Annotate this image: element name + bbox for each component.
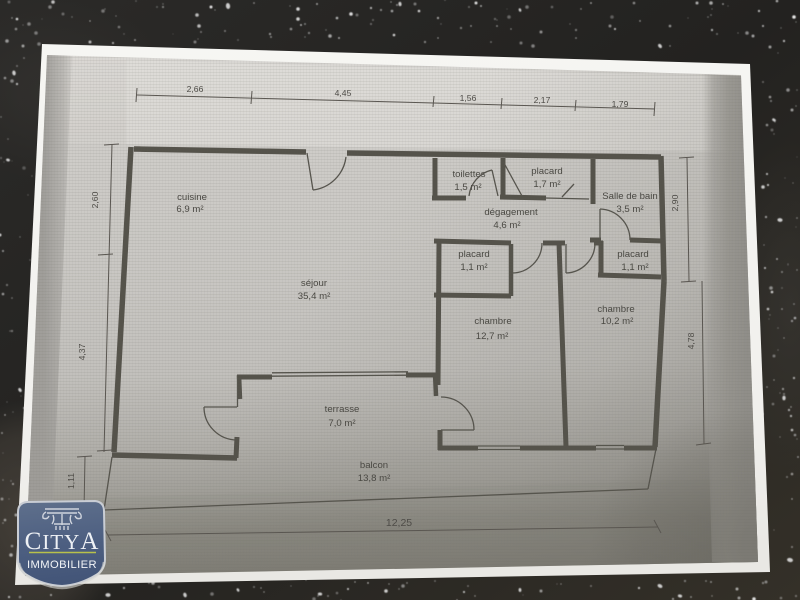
svg-text:6,9 m²: 6,9 m² xyxy=(176,204,204,215)
svg-text:2,90: 2,90 xyxy=(670,194,680,211)
svg-text:4,78: 4,78 xyxy=(686,332,696,349)
svg-text:séjour: séjour xyxy=(301,278,328,289)
svg-text:chambre: chambre xyxy=(597,304,634,315)
svg-text:1,1 m²: 1,1 m² xyxy=(460,262,488,273)
svg-text:terrasse: terrasse xyxy=(325,404,360,415)
svg-text:35,4 m²: 35,4 m² xyxy=(298,291,331,302)
svg-text:IMMOBILIER: IMMOBILIER xyxy=(27,559,97,571)
svg-text:4,6 m²: 4,6 m² xyxy=(493,220,521,231)
svg-text:1,79: 1,79 xyxy=(612,99,629,109)
svg-text:13,8 m²: 13,8 m² xyxy=(358,473,391,484)
svg-text:placard: placard xyxy=(531,166,562,177)
svg-text:1,11: 1,11 xyxy=(66,473,76,489)
svg-text:2,17: 2,17 xyxy=(534,95,551,105)
svg-text:4,37: 4,37 xyxy=(77,343,87,360)
svg-text:1,56: 1,56 xyxy=(460,93,477,103)
svg-text:1,1 m²: 1,1 m² xyxy=(621,262,649,273)
svg-text:2,66: 2,66 xyxy=(187,84,204,94)
svg-text:12,7 m²: 12,7 m² xyxy=(476,331,509,342)
svg-text:balcon: balcon xyxy=(360,460,388,471)
svg-text:1,7 m²: 1,7 m² xyxy=(533,179,561,190)
svg-text:4,45: 4,45 xyxy=(335,88,352,98)
svg-text:10,2 m²: 10,2 m² xyxy=(601,316,634,327)
svg-text:Salle de bain: Salle de bain xyxy=(602,191,657,202)
svg-text:1,5 m²: 1,5 m² xyxy=(454,182,482,193)
svg-text:toilettes: toilettes xyxy=(452,169,485,180)
svg-text:3,5 m²: 3,5 m² xyxy=(616,204,644,215)
svg-text:12,25: 12,25 xyxy=(386,517,412,529)
svg-text:CITYA: CITYA xyxy=(25,528,100,555)
svg-text:7,0 m²: 7,0 m² xyxy=(328,418,356,429)
svg-text:2,60: 2,60 xyxy=(90,191,100,208)
svg-text:placard: placard xyxy=(458,249,489,260)
svg-text:chambre: chambre xyxy=(474,316,511,327)
svg-text:dégagement: dégagement xyxy=(484,207,538,218)
svg-text:cuisine: cuisine xyxy=(177,192,207,203)
svg-text:placard: placard xyxy=(617,249,648,260)
